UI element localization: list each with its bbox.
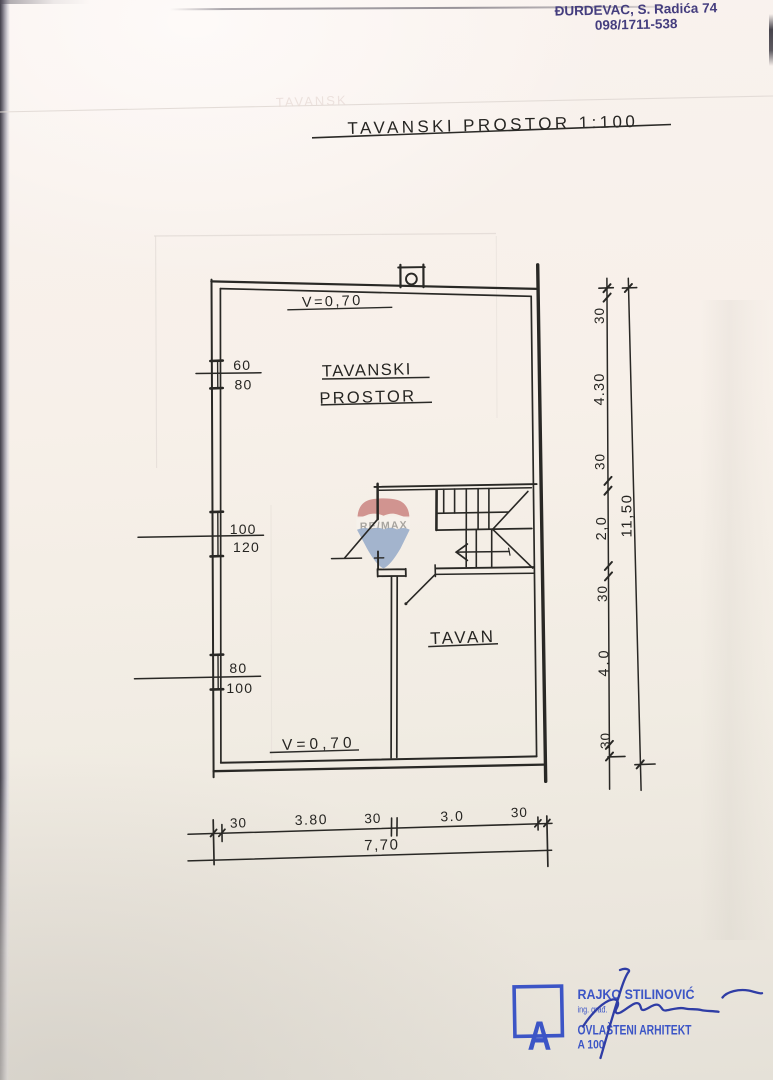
svg-text:A: A [528,1013,552,1059]
svg-text:100: 100 [226,680,253,696]
svg-text:30: 30 [593,453,608,470]
svg-text:30: 30 [592,307,607,324]
svg-text:60: 60 [233,357,251,373]
svg-text:30: 30 [511,805,528,820]
svg-text:TAVANSK: TAVANSK [276,93,348,110]
svg-text:4.30: 4.30 [592,372,608,405]
svg-text:OVLAŠTENI ARHITEKT: OVLAŠTENI ARHITEKT [578,1023,693,1038]
svg-text:120: 120 [233,539,260,555]
svg-text:3.0: 3.0 [440,808,464,825]
svg-text:80: 80 [235,377,253,393]
svg-text:30: 30 [230,815,247,830]
svg-text:A 100: A 100 [578,1038,605,1052]
svg-text:4.0: 4.0 [597,647,613,676]
svg-text:2,0: 2,0 [594,516,610,541]
svg-text:3.80: 3.80 [294,811,328,828]
svg-text:RAJKO STILINOVIĆ: RAJKO STILINOVIĆ [578,985,695,1002]
svg-text:100: 100 [230,521,257,537]
svg-text:11,50: 11,50 [619,494,636,538]
svg-text:30: 30 [364,811,381,826]
svg-text:7,70: 7,70 [364,836,400,854]
svg-text:80: 80 [229,660,247,676]
svg-text:098/1711-538: 098/1711-538 [595,16,678,33]
svg-text:30: 30 [595,585,610,602]
svg-text:ĐURDEVAC, S. Radića 74: ĐURDEVAC, S. Radića 74 [554,0,717,18]
svg-text:30: 30 [598,732,613,749]
